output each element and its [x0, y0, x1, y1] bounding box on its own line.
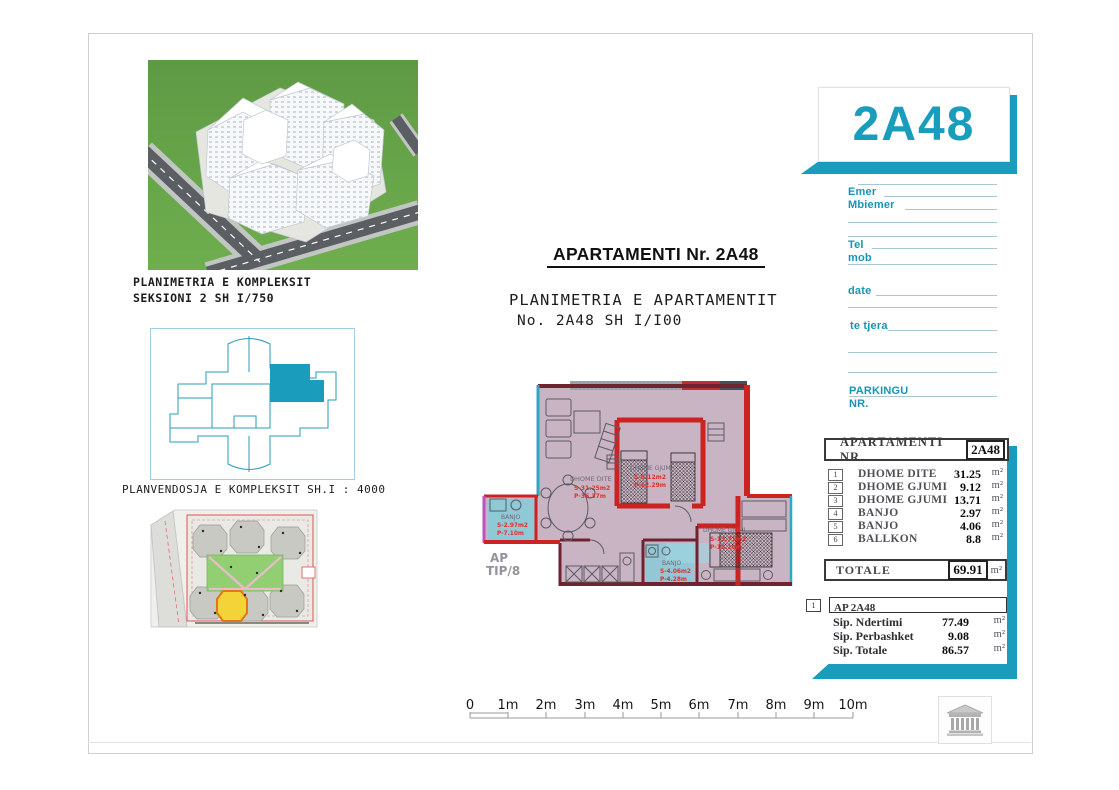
svg-text:S-31.25m2: S-31.25m2 — [574, 485, 610, 492]
page-subtitle-1: PLANIMETRIA E APARTAMENTIT — [509, 291, 778, 309]
svg-text:S-2.97m2: S-2.97m2 — [497, 523, 528, 529]
totale-unit: m² — [991, 565, 1002, 576]
room-label-living: DHOME DITE — [570, 475, 612, 483]
form-label-mob: mob — [848, 252, 872, 264]
form-line — [876, 295, 997, 296]
complex-plan-caption-line2: SEKSIONI 2 SH I/750 — [133, 291, 274, 305]
form-line — [905, 209, 997, 210]
row-name: BANJO — [858, 507, 898, 519]
apartment-floorplan-drawing: DHOME DITE S-31.25m2 P-36.37m DHOME GJUM… — [470, 373, 800, 605]
form-line — [848, 352, 997, 353]
row-value: 77.49 — [942, 615, 969, 630]
form-label-tel: Tel — [848, 239, 864, 251]
area-table-header-unit: 2A48 — [966, 440, 1005, 460]
section-key-plan-drawing — [150, 328, 355, 480]
svg-text:S-13.71m2: S-13.71m2 — [710, 536, 746, 543]
area-row: 4 BANJO 2.97 m² — [824, 508, 1009, 521]
area-table-header-label: APARTAMENTI NR. — [840, 435, 966, 465]
room-label-bedroom2: DHOME GJUMI — [703, 527, 746, 534]
row-number: 4 — [828, 508, 843, 520]
form-label-nr: NR. — [849, 398, 869, 410]
svg-text:P-12.29m: P-12.29m — [634, 482, 666, 489]
row-unit: m² — [992, 467, 1003, 478]
svg-text:7m: 7m — [728, 698, 749, 713]
form-line — [884, 196, 997, 197]
row-name: Sip. Perbashket — [833, 629, 914, 644]
row-name: DHOME GJUMI — [858, 494, 947, 506]
room-label-bedroom1: DHOME GJUMI — [630, 465, 673, 472]
row-unit: m² — [994, 629, 1005, 640]
form-line — [848, 222, 997, 223]
row-unit: m² — [992, 493, 1003, 504]
row-number: 1 — [828, 469, 843, 481]
svg-text:4m: 4m — [613, 698, 634, 713]
badge-shadow-bottom — [801, 160, 1017, 174]
drawing-sheet: PLANIMETRIA E KOMPLEKSIT SEKSIONI 2 SH I… — [0, 0, 1119, 790]
row-name: DHOME DITE — [858, 468, 937, 480]
complex-3d-render-image — [148, 60, 418, 270]
row-unit: m² — [992, 532, 1003, 543]
room-label-bath1: BANJO — [501, 514, 520, 521]
summary-row: Sip. Perbashket 9.08 m² — [829, 629, 1009, 643]
row-number: 5 — [828, 521, 843, 533]
svg-text:P-15.10m: P-15.10m — [710, 544, 742, 551]
svg-text:2m: 2m — [536, 698, 557, 713]
firm-logo-box — [938, 696, 992, 744]
row-unit: m² — [994, 615, 1005, 626]
row-number: 2 — [828, 482, 843, 494]
form-line — [858, 184, 997, 185]
summary-row: Sip. Ndertimi 77.49 m² — [829, 615, 1009, 629]
form-line — [848, 236, 997, 237]
svg-text:P-4.28m: P-4.28m — [660, 577, 687, 583]
complex-plan-caption-line1: PLANIMETRIA E KOMPLEKSIT — [133, 275, 311, 289]
svg-text:5m: 5m — [651, 698, 672, 713]
form-line — [872, 248, 997, 249]
form-label-tetjera: te tjera — [850, 320, 888, 332]
area-table-header: APARTAMENTI NR. 2A48 — [824, 438, 1009, 461]
form-label-emer: Emer — [848, 186, 876, 198]
svg-text:P-7.10m: P-7.10m — [497, 531, 524, 537]
page-title: APARTAMENTI Nr. 2A48 — [547, 244, 765, 268]
scale-bar: 0 1m 2m 3m 4m 5m 6m 7m 8m 9m 10m — [458, 697, 868, 727]
row-value: 86.57 — [942, 643, 969, 658]
row-name: BANJO — [858, 520, 898, 532]
row-unit: m² — [992, 480, 1003, 491]
form-line — [888, 330, 997, 331]
totale-value: 69.91 — [948, 560, 987, 580]
svg-text:0: 0 — [466, 698, 474, 713]
row-name: Sip. Ndertimi — [833, 615, 902, 630]
row-unit: m² — [994, 643, 1005, 654]
form-line — [848, 372, 997, 373]
summary-row: Sip. Totale 86.57 m² — [829, 643, 1009, 657]
row-value: 8.8 — [966, 532, 981, 547]
row-unit: m² — [992, 519, 1003, 530]
svg-text:9m: 9m — [804, 698, 825, 713]
site-plan-caption: PLANVENDOSJA E KOMPLEKSIT SH.I : 4000 — [122, 483, 386, 496]
form-label-date: date — [848, 285, 871, 297]
sheet-inner-bottom-line — [88, 742, 1031, 743]
summary-index-box: 1 — [806, 599, 821, 612]
temple-logo-icon — [945, 703, 985, 737]
area-row: 3 DHOME GJUMI 13.71 m² — [824, 495, 1009, 508]
row-name: BALLKON — [858, 533, 918, 545]
svg-text:8m: 8m — [766, 698, 787, 713]
svg-text:S-4.06m2: S-4.06m2 — [660, 569, 691, 575]
summary-header: AP 2A48 — [834, 601, 875, 615]
svg-text:3m: 3m — [575, 698, 596, 713]
ap-type-label-line1: AP — [490, 551, 508, 565]
table-shadow-bottom — [812, 664, 1017, 679]
row-number: 6 — [828, 534, 843, 546]
unit-badge-text: 2A48 — [853, 97, 976, 152]
form-line — [848, 307, 997, 308]
form-line — [849, 396, 997, 397]
room-label-bath2: BANJO — [662, 560, 681, 567]
page-subtitle-2: No. 2A48 SH I/I00 — [517, 313, 682, 329]
row-name: DHOME GJUMI — [858, 481, 947, 493]
unit-badge: 2A48 — [818, 87, 1010, 162]
area-row: 6 BALLKON 8.8 m² — [824, 534, 1009, 547]
totale-box: TOTALE 69.91 m² — [824, 559, 1007, 581]
svg-text:6m: 6m — [689, 698, 710, 713]
summary-header-box: AP 2A48 — [829, 597, 1007, 613]
totale-label: TOTALE — [836, 563, 948, 578]
ap-type-label-line2: TIP/8 — [486, 564, 520, 578]
row-name: Sip. Totale — [833, 643, 887, 658]
form-line — [848, 264, 997, 265]
row-value: 9.08 — [948, 629, 969, 644]
svg-text:S-9.12m2: S-9.12m2 — [634, 474, 666, 481]
svg-text:1m: 1m — [498, 698, 519, 713]
row-unit: m² — [992, 506, 1003, 517]
svg-text:10m: 10m — [838, 698, 867, 713]
row-number: 3 — [828, 495, 843, 507]
form-label-mbiemer: Mbiemer — [848, 199, 895, 211]
highlighted-site-building — [217, 591, 247, 621]
site-plan-drawing — [145, 507, 325, 633]
svg-text:P-36.37m: P-36.37m — [574, 493, 606, 500]
